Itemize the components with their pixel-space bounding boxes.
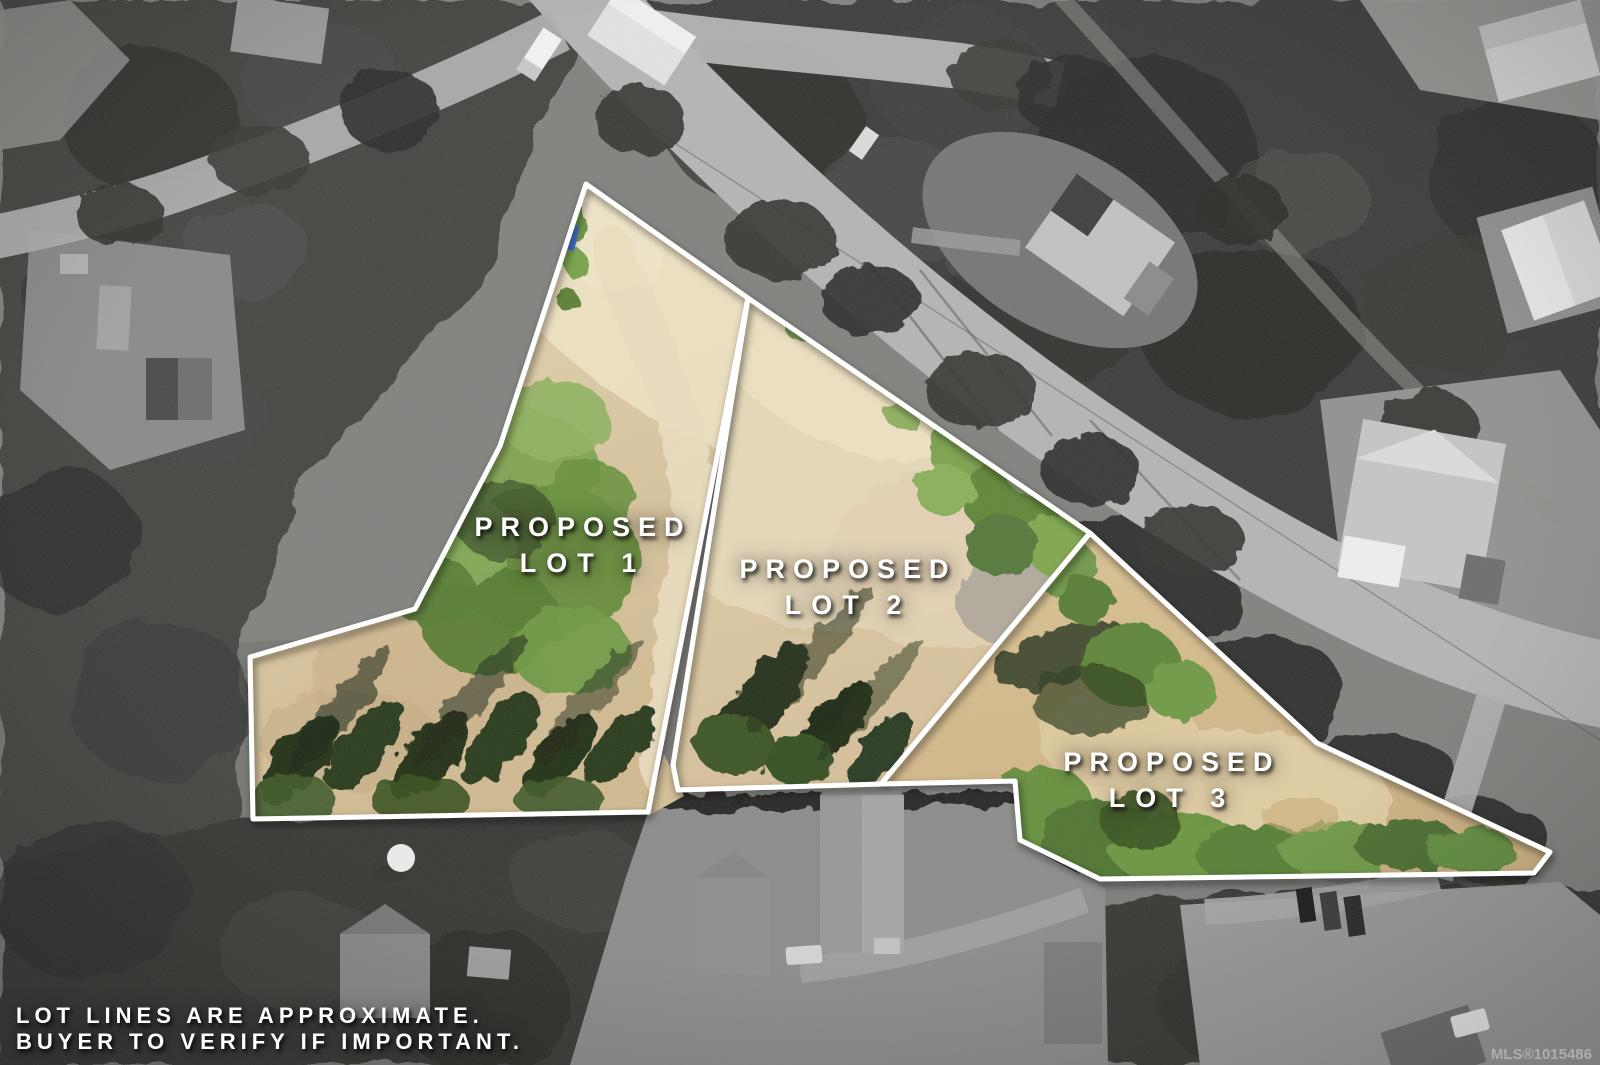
lot-2-label-line-2: LOT 2 <box>785 590 912 620</box>
aerial-photo-canvas: PROPOSED LOT 1 PROPOSED LOT 2 PROPOSED L… <box>0 0 1600 1065</box>
disclaimer-line-1: LOT LINES ARE APPROXIMATE. <box>16 1003 484 1028</box>
mls-number: MLS®1015486 <box>1491 1046 1592 1063</box>
aerial-photo: PROPOSED LOT 1 PROPOSED LOT 2 PROPOSED L… <box>0 0 1600 1065</box>
mls-watermark: MLS®1015486 <box>1491 1046 1592 1063</box>
vignette <box>0 0 1600 1065</box>
disclaimer-line-2: BUYER TO VERIFY IF IMPORTANT. <box>16 1029 524 1054</box>
lot-3-label-line-2: LOT 3 <box>1109 783 1236 813</box>
lot-1-label-line-2: LOT 1 <box>520 548 647 578</box>
lot-2-label-line-1: PROPOSED <box>739 554 956 584</box>
disclaimer: LOT LINES ARE APPROXIMATE. BUYER TO VERI… <box>16 1003 524 1054</box>
lot-3-label-line-1: PROPOSED <box>1063 747 1280 777</box>
lot-1-label-line-1: PROPOSED <box>474 512 691 542</box>
